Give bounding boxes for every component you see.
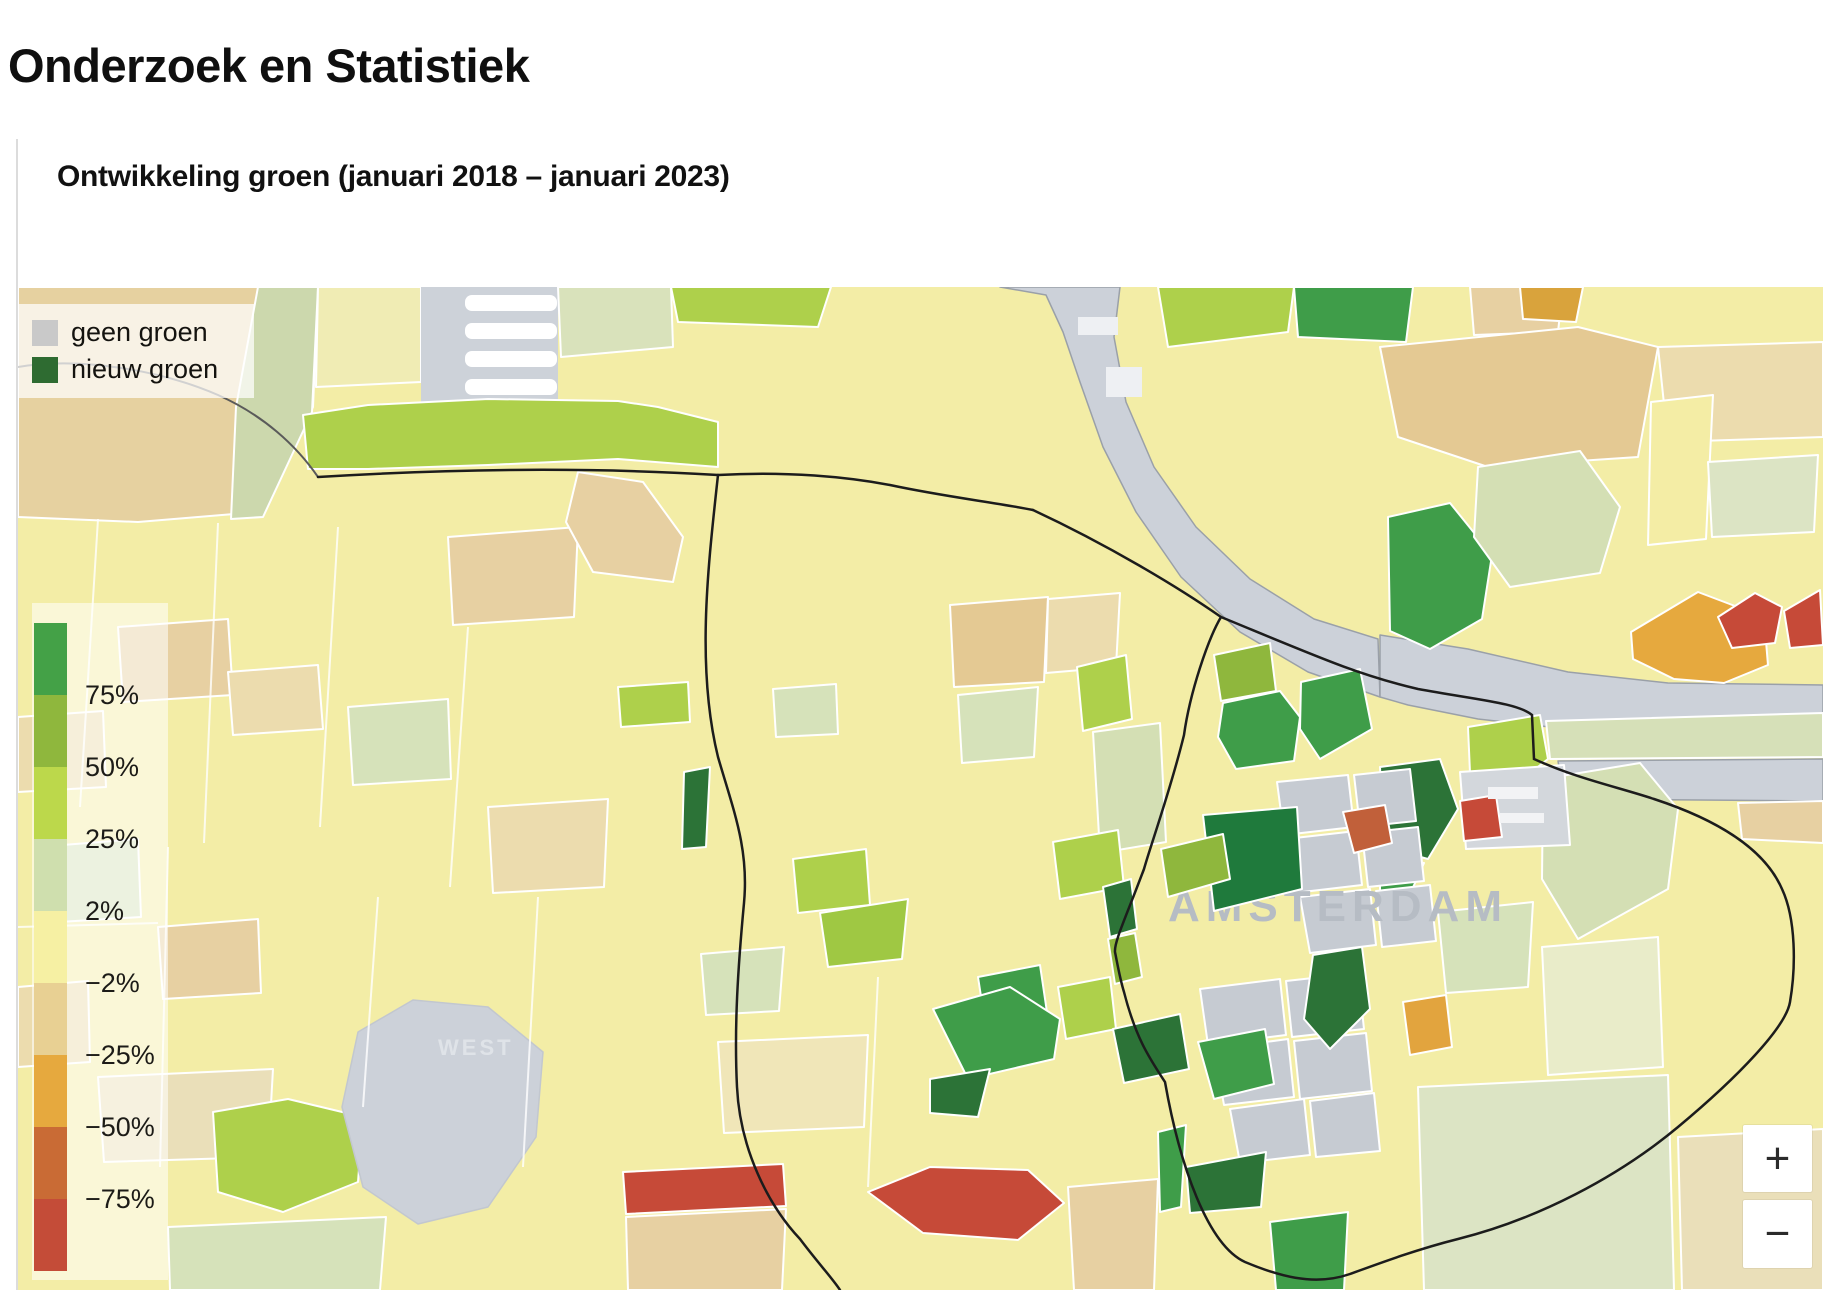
scale-segment <box>34 911 67 983</box>
scale-gradient-bar <box>34 623 67 1271</box>
scale-segment <box>34 839 67 911</box>
legend-label: nieuw groen <box>71 356 218 383</box>
scale-tick-label: 75% <box>85 679 167 711</box>
scale-segment <box>34 623 67 695</box>
legend-item-1: nieuw groen <box>32 351 244 388</box>
scale-tick-label: −25% <box>85 1039 167 1071</box>
map-canvas: AMSTERDAM <box>18 287 1823 1290</box>
scale-tick-label: 50% <box>85 751 167 783</box>
zoom-in-button[interactable]: + <box>1743 1125 1812 1192</box>
scale-segment <box>34 1199 67 1271</box>
page-title: Onderzoek en Statistiek <box>8 38 529 93</box>
choropleth-map[interactable]: AMSTERDAM <box>18 287 1823 1290</box>
scale-tick-label: −50% <box>85 1111 167 1143</box>
scale-tick-label: −75% <box>85 1183 167 1215</box>
legend-label: geen groen <box>71 319 208 346</box>
west-map-label: WEST <box>438 1035 514 1060</box>
map-title: Ontwikkeling groen (januari 2018 – janua… <box>57 160 730 194</box>
scale-segment <box>34 1055 67 1127</box>
geen-groen-swatch <box>32 320 58 346</box>
scale-segment <box>34 767 67 839</box>
legend-item-0: geen groen <box>32 314 244 351</box>
scale-segment <box>34 695 67 767</box>
scale-tick-label: 25% <box>85 823 167 855</box>
nieuw-groen-swatch <box>32 357 58 383</box>
scale-tick-label: −2% <box>85 967 167 999</box>
color-scale: 75%50%25%2%−2%−25%−50%−75% <box>32 603 168 1280</box>
scale-segment <box>34 983 67 1055</box>
scale-segment <box>34 1127 67 1199</box>
scale-tick-label: 2% <box>85 895 167 927</box>
map-legend: geen groennieuw groen <box>18 304 254 398</box>
zoom-out-button[interactable]: − <box>1743 1200 1812 1268</box>
